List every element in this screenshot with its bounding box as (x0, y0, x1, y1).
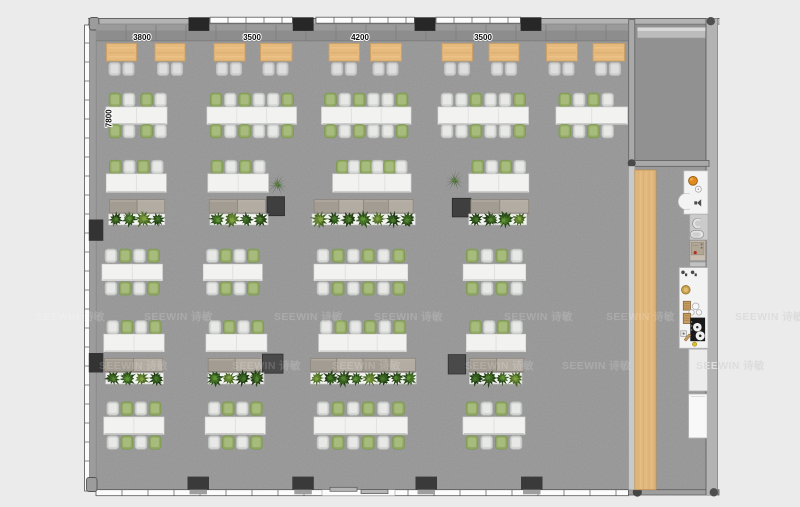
svg-text:SEEWIN 诗敏: SEEWIN 诗敏 (735, 310, 800, 323)
svg-text:SEEWIN 诗敏: SEEWIN 诗敏 (36, 310, 105, 323)
svg-text:SEEWIN 诗敏: SEEWIN 诗敏 (504, 310, 573, 323)
svg-text:3500: 3500 (474, 33, 492, 42)
svg-text:3500: 3500 (243, 33, 261, 42)
svg-text:SEEWIN 诗敏: SEEWIN 诗敏 (144, 310, 213, 323)
svg-text:SEEWIN 诗敏: SEEWIN 诗敏 (696, 359, 765, 372)
svg-text:SEEWIN 诗敏: SEEWIN 诗敏 (332, 359, 401, 372)
svg-text:4200: 4200 (351, 33, 369, 42)
svg-text:SEEWIN 诗敏: SEEWIN 诗敏 (374, 310, 443, 323)
svg-text:SEEWIN 诗敏: SEEWIN 诗敏 (232, 359, 301, 372)
svg-text:SEEWIN 诗敏: SEEWIN 诗敏 (562, 359, 631, 372)
svg-text:SEEWIN 诗敏: SEEWIN 诗敏 (606, 310, 675, 323)
svg-text:SEEWIN 诗敏: SEEWIN 诗敏 (274, 310, 343, 323)
svg-text:SEEWIN 诗敏: SEEWIN 诗敏 (99, 359, 168, 372)
svg-text:3800: 3800 (133, 33, 151, 42)
svg-text:SEEWIN 诗敏: SEEWIN 诗敏 (465, 359, 534, 372)
svg-text:7800: 7800 (105, 109, 114, 127)
